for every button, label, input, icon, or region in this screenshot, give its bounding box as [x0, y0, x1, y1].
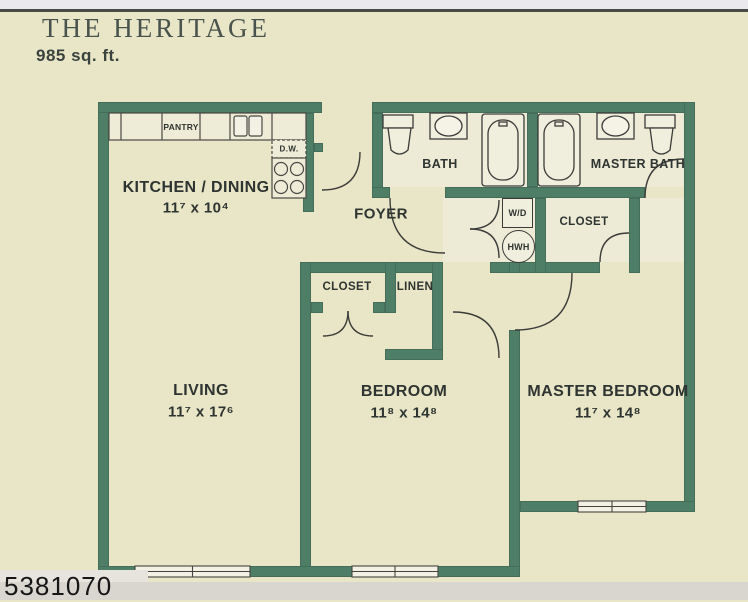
bedroom-label: BEDROOM: [361, 383, 447, 401]
fixtures-layer: [0, 0, 748, 600]
master-sink: [602, 116, 629, 136]
living-dims: 11⁷ x 17⁶: [168, 404, 234, 421]
living-label: LIVING: [173, 382, 229, 400]
master-bath-label: MASTER BATH: [591, 157, 685, 171]
master-closet-label: CLOSET: [559, 216, 608, 228]
master-closet-door-arc: [600, 233, 629, 262]
bath-toilet-bowl: [388, 128, 411, 154]
bath-sink: [435, 116, 462, 136]
laundry-bifold-arc-top: [470, 200, 499, 229]
kitchen-counter: [109, 113, 306, 140]
foyer-label: FOYER: [354, 206, 408, 223]
bedroom-closet-door-arc-right: [348, 311, 373, 336]
master-bedroom-door-arc: [515, 273, 572, 330]
water-heater-circle: HWH: [502, 230, 535, 263]
master-toilet-bowl: [650, 128, 673, 154]
master-bedroom-label: MASTER BEDROOM: [527, 383, 688, 401]
bedroom-closet-label: CLOSET: [322, 281, 371, 293]
washer-dryer-box: W/D: [502, 198, 533, 228]
pantry-label: PANTRY: [163, 122, 198, 132]
kitchen-label: KITCHEN / DINING: [123, 179, 270, 197]
listing-number: 5381070: [4, 571, 112, 602]
linen-label: LINEN: [397, 281, 434, 293]
laundry-bifold-arc-bottom: [470, 229, 499, 258]
bedroom-door-arc: [453, 312, 499, 358]
bedroom-closet-door-arc-left: [323, 311, 348, 336]
bath-label: BATH: [422, 157, 457, 171]
master-bedroom-dims: 11⁷ x 14⁸: [575, 405, 641, 422]
kitchen-sink: [234, 116, 247, 136]
master-toilet-tank: [645, 115, 675, 128]
entry-door-arc: [322, 152, 360, 190]
water-heater-label: HWH: [507, 242, 529, 252]
dishwasher-label: D.W.: [280, 145, 299, 154]
washer-dryer-label: W/D: [508, 208, 526, 218]
kitchen-dims: 11⁷ x 10⁴: [163, 200, 229, 217]
bedroom-dims: 11⁸ x 14⁸: [371, 405, 438, 422]
kitchen-sink: [249, 116, 262, 136]
floorplan-photo: { "header": { "title": "THE HERITAGE", "…: [0, 0, 748, 600]
bath-toilet-tank: [383, 115, 413, 128]
